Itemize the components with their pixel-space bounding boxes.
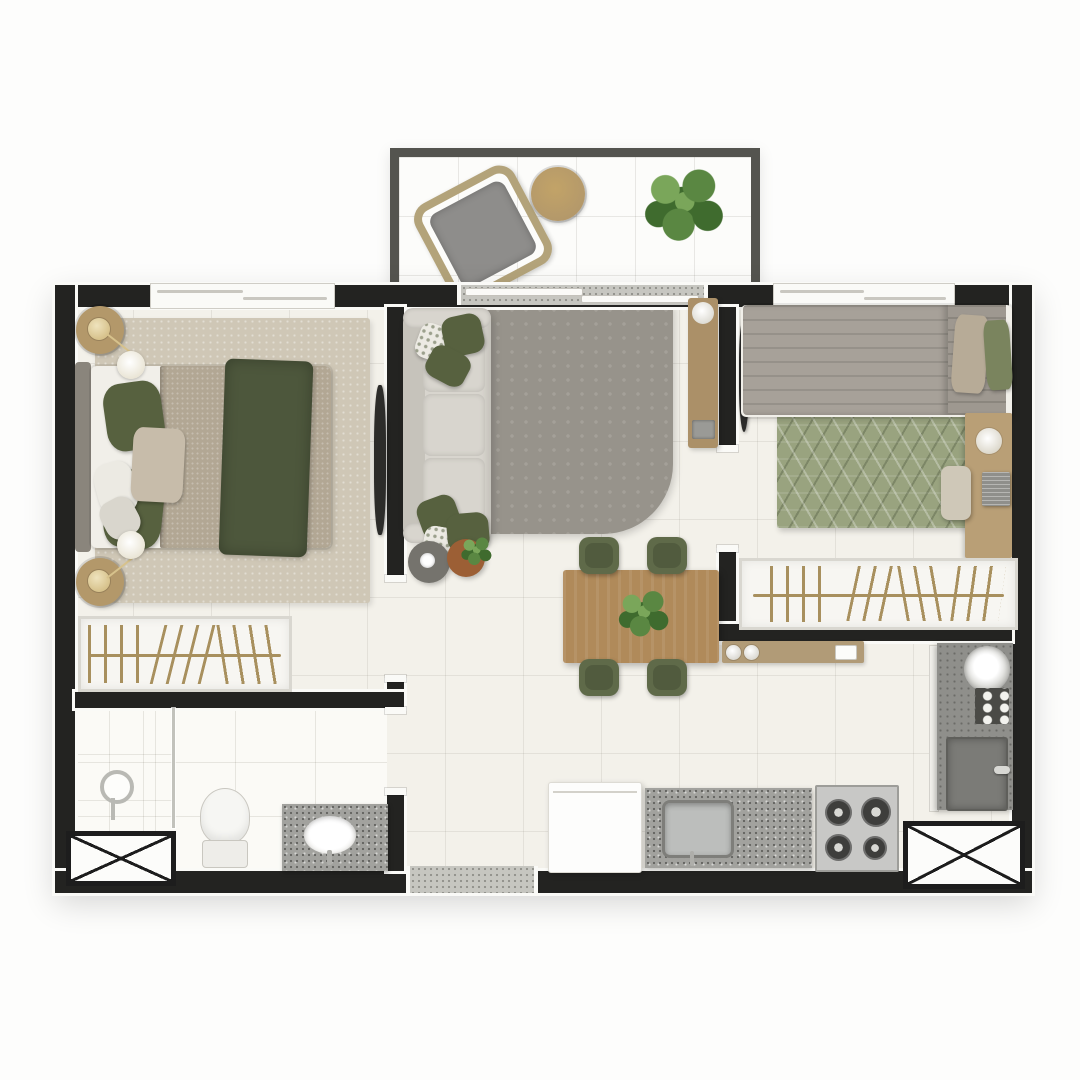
wall-bedroom1-living xyxy=(387,307,404,577)
dining-chair xyxy=(579,537,619,574)
stove-burner xyxy=(825,799,852,826)
window-pane xyxy=(157,290,243,293)
laptop xyxy=(982,472,1010,506)
table-centerpiece-plant xyxy=(615,587,671,643)
wardrobe-hangers xyxy=(770,566,834,621)
bathroom-door-jamb-top xyxy=(385,707,406,714)
gas-stove xyxy=(815,785,899,872)
pillow-green xyxy=(983,319,1014,391)
kitchen-sink xyxy=(662,800,734,858)
wall-living-bedroom2 xyxy=(719,307,736,447)
wall-bathroom-right xyxy=(387,795,404,871)
dining-chair xyxy=(647,659,687,696)
bedroom2-door-jamb-top xyxy=(717,445,738,452)
balcony-potted-plant xyxy=(639,163,727,251)
bedroom1-green-throw xyxy=(219,359,314,558)
reading-lamp-top xyxy=(117,351,145,379)
window-pane xyxy=(243,297,327,300)
counter-switch xyxy=(835,645,857,660)
nightstand-lamp-top xyxy=(88,318,110,340)
desk-lamp xyxy=(976,428,1002,454)
cup xyxy=(420,553,435,568)
laundry-rack xyxy=(975,688,1009,724)
vanity-sink xyxy=(304,816,356,854)
stove-burner xyxy=(863,836,887,860)
shower-column xyxy=(100,770,134,804)
bedroom1-headboard xyxy=(75,362,91,552)
bedroom2-wardrobe xyxy=(739,558,1018,630)
balcony-side-table xyxy=(531,167,585,221)
machine-handle xyxy=(994,766,1010,774)
window-pane xyxy=(864,297,946,300)
toilet xyxy=(200,788,250,844)
counter-bowl xyxy=(744,645,759,660)
bedroom2-quilt xyxy=(743,305,948,415)
bedroom1-wardrobe xyxy=(78,616,292,692)
balcony-sliding-door xyxy=(457,285,708,305)
armchair-cushion xyxy=(427,178,540,290)
speaker xyxy=(692,302,714,324)
counter-bowl xyxy=(726,645,741,660)
dining-chair xyxy=(579,659,619,696)
duct-shaft-left xyxy=(66,831,176,886)
bedroom1-door-jamb-top xyxy=(385,575,406,582)
vanity-faucet xyxy=(327,850,332,865)
wall-bottom xyxy=(55,871,1032,893)
shower-glass-partition xyxy=(172,708,175,828)
desk-chair xyxy=(941,466,971,520)
shower-stem xyxy=(111,798,115,820)
bedroom1-door-jamb-bottom xyxy=(385,675,406,682)
sliding-door-panel xyxy=(465,288,583,296)
wardrobe-hangers xyxy=(216,625,283,684)
apartment-shell xyxy=(55,285,1032,893)
stove-burner xyxy=(861,797,891,827)
side-table-plant xyxy=(459,535,493,569)
wardrobe-hangers xyxy=(88,625,146,684)
media-console xyxy=(692,420,715,439)
sliding-door-panel xyxy=(581,295,699,303)
laundry-tub xyxy=(964,646,1010,692)
wardrobe-hangers xyxy=(897,566,947,621)
nightstand-lamp-bottom xyxy=(88,570,110,592)
wardrobe-hangers xyxy=(846,566,898,621)
floor-plan xyxy=(0,0,1080,1080)
living-rug xyxy=(477,303,673,534)
bedroom1-window xyxy=(150,283,335,309)
bedroom2-rug xyxy=(777,413,967,528)
sofa-seat xyxy=(423,394,485,456)
refrigerator xyxy=(548,782,642,873)
kitchen-faucet xyxy=(690,851,694,866)
reading-lamp-bottom xyxy=(117,531,145,559)
window-pane xyxy=(780,290,864,293)
stove-burner xyxy=(825,834,852,861)
washing-machine xyxy=(946,737,1008,811)
entrance-threshold xyxy=(406,866,538,893)
wardrobe-hangers xyxy=(950,566,1006,621)
wardrobe-hangers xyxy=(150,625,219,684)
bedroom2-door-jamb-bottom xyxy=(717,545,738,552)
pillow-beige xyxy=(130,427,186,504)
wall-bathroom-top xyxy=(75,692,404,708)
toilet-tank xyxy=(202,840,248,868)
dining-chair xyxy=(647,537,687,574)
bathroom-door-jamb-bottom xyxy=(385,788,406,795)
duct-shaft-right xyxy=(903,821,1025,889)
bedroom1-tv xyxy=(374,385,386,535)
wall-left xyxy=(55,285,75,893)
balcony xyxy=(390,148,760,299)
